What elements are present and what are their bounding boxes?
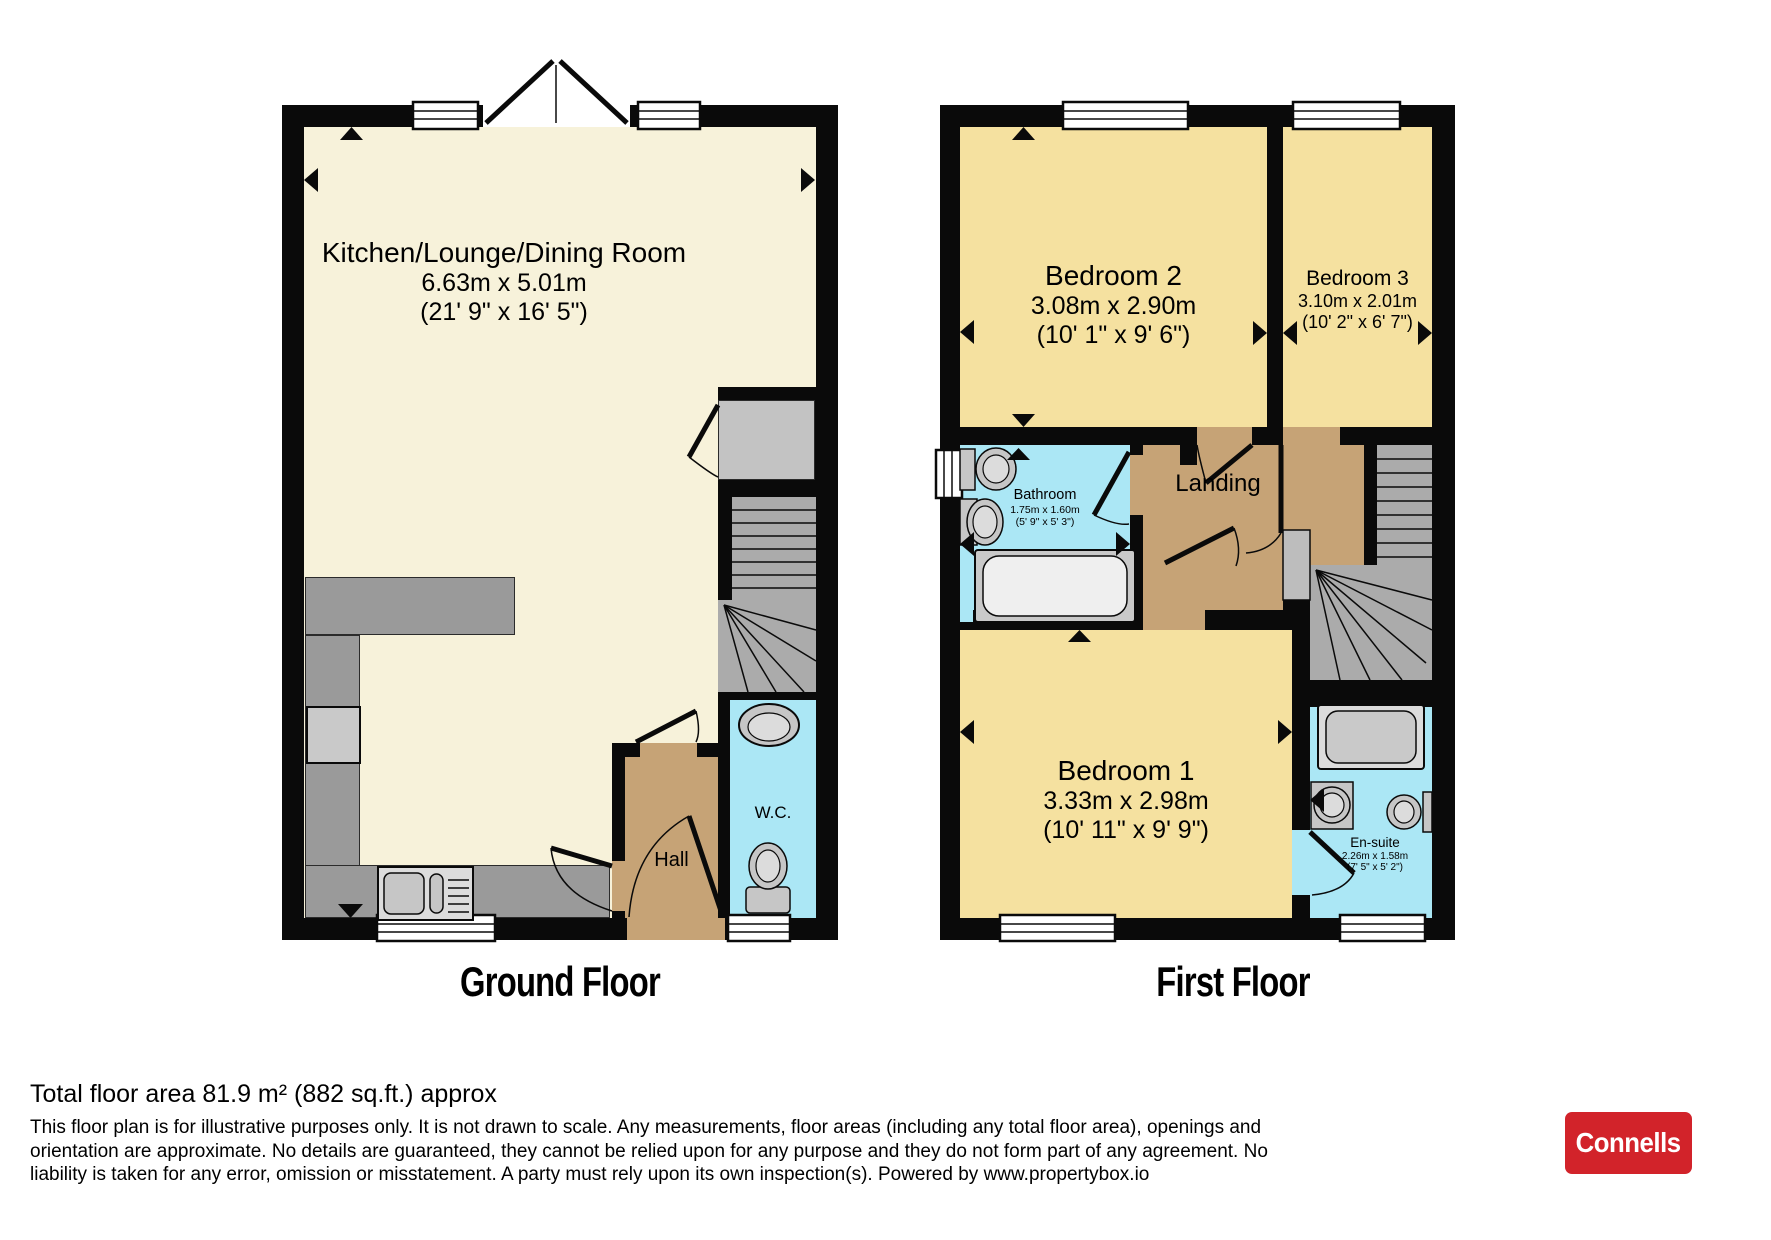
arrow-left-icon [304, 168, 318, 192]
arrow-right-icon [801, 168, 815, 192]
kitchen-name: Kitchen/Lounge/Dining Room [304, 237, 704, 269]
window-top-left [413, 102, 478, 129]
stairs-ground [718, 497, 816, 692]
window-bottom-right [728, 915, 790, 941]
arrow-up-icon [1068, 630, 1091, 642]
window-bathroom [936, 450, 962, 498]
shower-icon [1318, 705, 1424, 769]
hall-label: Hall [625, 849, 718, 872]
kitchen-label: Kitchen/Lounge/Dining Room 6.63m x 5.01m… [304, 237, 704, 327]
total-floor-area: Total floor area 81.9 m² (882 sq.ft.) ap… [30, 1080, 497, 1109]
bedroom2-name: Bedroom 2 [960, 260, 1267, 292]
bathroom-toilet-icon [960, 448, 1016, 490]
floorplan-page: Kitchen/Lounge/Dining Room 6.63m x 5.01m… [0, 0, 1771, 1240]
bedroom3-name: Bedroom 3 [1283, 267, 1432, 291]
wc-label: W.C. [730, 803, 816, 823]
bathroom-name: Bathroom [970, 487, 1120, 504]
bath-icon [975, 550, 1135, 622]
sink-icon [378, 867, 473, 920]
ground-floor-plan: Kitchen/Lounge/Dining Room 6.63m x 5.01m… [282, 105, 838, 940]
first-floor-plan: Bedroom 2 3.08m x 2.90m (10' 1" x 9' 6")… [940, 105, 1455, 940]
arrow-left-icon [960, 720, 974, 744]
arrow-down-icon [338, 904, 363, 918]
kitchen-hall-door [551, 848, 612, 911]
bedroom1-imperial: (10' 11" x 9' 9") [960, 816, 1292, 845]
cupboard-door [689, 405, 718, 477]
kitchen-imperial: (21' 9" x 16' 5") [304, 298, 704, 327]
bathroom-metric: 1.75m x 1.60m [970, 504, 1120, 516]
stairs-first [1283, 445, 1432, 680]
connells-logo-text: Connells [1576, 1127, 1681, 1159]
hob-icon [307, 707, 360, 763]
window-bed2 [1063, 102, 1188, 129]
disclaimer-text: This floor plan is for illustrative purp… [30, 1116, 1325, 1187]
bathroom-label: Bathroom 1.75m x 1.60m (5' 9" x 5' 3") [970, 487, 1120, 528]
bedroom1-metric: 3.33m x 2.98m [960, 787, 1292, 816]
bedroom2-metric: 3.08m x 2.90m [960, 292, 1267, 321]
arrow-down-icon [1012, 414, 1035, 427]
bedroom1-door [1165, 528, 1239, 566]
bedroom2-imperial: (10' 1" x 9' 6") [960, 321, 1267, 350]
kitchen-metric: 6.63m x 5.01m [304, 269, 704, 298]
ensuite-metric: 2.26m x 1.58m [1318, 851, 1432, 863]
landing-label: Landing [1143, 470, 1293, 498]
ground-floor-title: Ground Floor [404, 958, 716, 1006]
wc-toilet-icon [746, 843, 790, 913]
ensuite-toilet-icon [1387, 792, 1432, 832]
bedroom2-label: Bedroom 2 3.08m x 2.90m (10' 1" x 9' 6") [960, 260, 1267, 350]
first-floor-title: First Floor [1077, 958, 1389, 1006]
ensuite-name: En-suite [1318, 835, 1432, 851]
connells-logo: Connells [1565, 1112, 1692, 1174]
bedroom1-name: Bedroom 1 [960, 755, 1292, 787]
arrow-up-icon [340, 127, 363, 140]
bedroom1-label: Bedroom 1 3.33m x 2.98m (10' 11" x 9' 9"… [960, 755, 1292, 845]
bedroom3-door [1246, 445, 1281, 553]
arrow-up-icon [1012, 127, 1035, 140]
window-bed1 [1000, 915, 1115, 941]
hall-top-door [636, 711, 699, 742]
bedroom3-metric: 3.10m x 2.01m [1283, 291, 1432, 312]
window-ensuite [1340, 915, 1425, 941]
bathroom-imperial: (5' 9" x 5' 3") [970, 516, 1120, 528]
ensuite-imperial: (7' 5" x 5' 2") [1318, 862, 1432, 874]
french-doors [483, 61, 630, 127]
window-bed3 [1293, 102, 1400, 129]
bedroom3-label: Bedroom 3 3.10m x 2.01m (10' 2" x 6' 7") [1283, 267, 1432, 333]
window-top-right [638, 102, 700, 129]
bedroom3-imperial: (10' 2" x 6' 7") [1283, 312, 1432, 333]
arrow-right-icon [1278, 720, 1292, 744]
wc-basin-icon [739, 704, 799, 746]
ensuite-label: En-suite 2.26m x 1.58m (7' 5" x 5' 2") [1318, 835, 1432, 874]
